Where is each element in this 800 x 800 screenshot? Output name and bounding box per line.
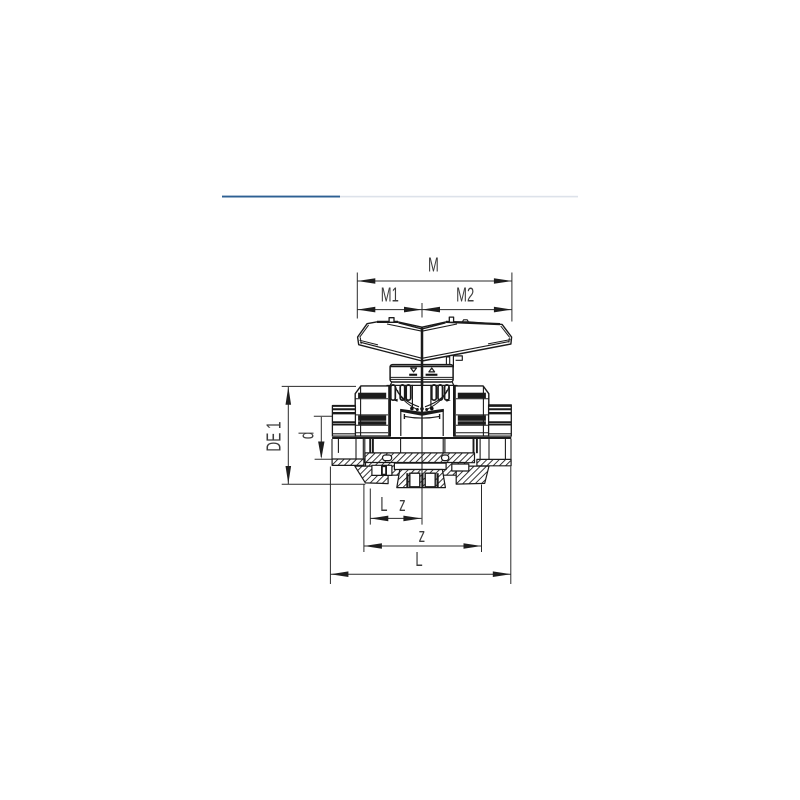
svg-text:z: z	[419, 524, 426, 547]
svg-text:L: L	[415, 548, 422, 571]
svg-text:M2: M2	[456, 284, 474, 307]
svg-text:M: M	[428, 254, 439, 277]
svg-text:DE 1: DE 1	[263, 421, 285, 451]
svg-text:L: L	[380, 493, 387, 516]
svg-text:z: z	[399, 493, 406, 516]
svg-text:M1: M1	[381, 284, 399, 307]
svg-text:d: d	[296, 432, 318, 440]
